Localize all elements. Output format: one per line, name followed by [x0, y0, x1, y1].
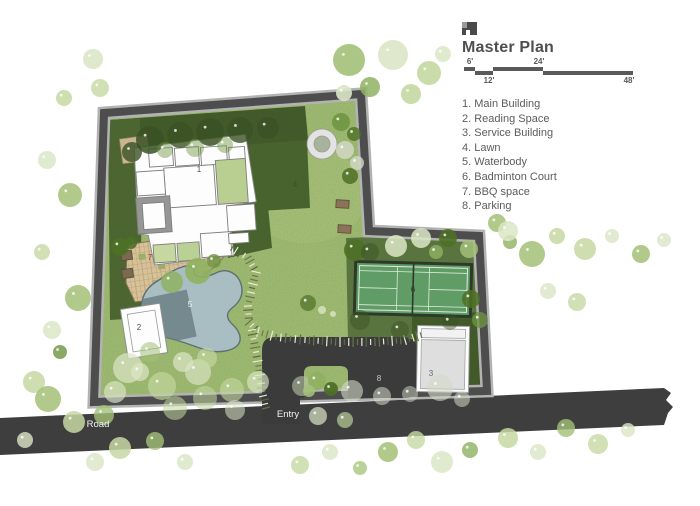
tree-highlight: [156, 380, 159, 383]
tree: [53, 345, 67, 359]
tree: [588, 434, 608, 454]
tree-highlight: [297, 381, 300, 384]
tree-highlight: [327, 385, 330, 388]
tree-highlight: [446, 318, 449, 321]
tree-highlight: [365, 82, 368, 85]
area-label-badminton-court: 6: [411, 285, 416, 294]
tree: [431, 451, 453, 473]
tree: [125, 237, 137, 249]
scale-label: 48': [624, 76, 635, 85]
tree: [385, 235, 407, 257]
tree: [247, 371, 269, 393]
tree-highlight: [580, 244, 583, 247]
tree: [225, 400, 245, 420]
tree: [605, 229, 619, 243]
scale-segment: [475, 71, 493, 75]
tree-highlight: [88, 54, 91, 57]
tree: [35, 386, 61, 412]
tree: [217, 137, 233, 153]
tree: [303, 385, 315, 397]
tree-highlight: [174, 129, 177, 132]
tree-highlight: [169, 402, 172, 405]
tree-highlight: [21, 436, 24, 439]
tree-highlight: [313, 411, 316, 414]
grass-hatch-tick: [379, 337, 380, 347]
tree-highlight: [64, 189, 67, 192]
tree-highlight: [226, 384, 229, 387]
tree-highlight: [355, 315, 358, 318]
logo-detail: [466, 30, 470, 35]
tree: [391, 321, 409, 339]
master-plan-page: 1 2 3 4 5 6 7 8 Road Entry Master Plan 6…: [0, 0, 700, 506]
tree-highlight: [353, 159, 356, 162]
area-label-parking: 8: [377, 374, 382, 383]
scale-label: 6': [467, 57, 473, 66]
tree-highlight: [263, 123, 266, 126]
tree-highlight: [199, 392, 202, 395]
tree-highlight: [90, 457, 93, 460]
tree-highlight: [503, 433, 506, 436]
tree-highlight: [526, 248, 529, 251]
tree: [318, 306, 326, 314]
grass-hatch-tick: [243, 310, 253, 311]
tree: [207, 254, 221, 268]
legend-item: 5. Waterbody: [462, 155, 694, 170]
tree: [347, 127, 361, 141]
road-label: Road: [87, 419, 110, 430]
tree: [454, 391, 470, 407]
area-label-lawn: 4: [293, 180, 298, 189]
tree: [38, 151, 56, 169]
tree: [91, 79, 109, 97]
tree-highlight: [340, 145, 343, 148]
tree: [17, 432, 33, 448]
tree: [337, 412, 353, 428]
tree: [146, 432, 164, 450]
legend-item: 2. Reading Space: [462, 112, 694, 127]
tree-highlight: [42, 393, 45, 396]
tree-highlight: [660, 236, 663, 239]
tree: [122, 142, 142, 162]
tree: [498, 221, 518, 241]
tree-highlight: [178, 357, 181, 360]
area-label-reading-space: 2: [137, 323, 142, 332]
tree-highlight: [253, 377, 256, 380]
logo-detail: [462, 22, 467, 28]
tree-highlight: [29, 377, 32, 380]
tree: [63, 411, 85, 433]
tree-highlight: [161, 146, 164, 149]
tree-highlight: [416, 233, 419, 236]
page-title: Master Plan: [462, 39, 694, 57]
tree-highlight: [181, 458, 184, 461]
tree: [186, 139, 204, 157]
tree: [621, 423, 635, 437]
tree-highlight: [377, 391, 380, 394]
entry-label: Entry: [277, 409, 299, 420]
tree: [530, 444, 546, 460]
tree: [109, 437, 131, 459]
tree-highlight: [593, 439, 596, 442]
tree-highlight: [466, 446, 469, 449]
tree-highlight: [624, 426, 627, 429]
tree: [462, 290, 480, 308]
tree-highlight: [202, 353, 205, 356]
tree-highlight: [38, 248, 41, 251]
tree: [402, 386, 418, 402]
tree-highlight: [341, 416, 344, 419]
tree-highlight: [492, 218, 495, 221]
tree: [472, 312, 488, 328]
tree-highlight: [572, 297, 575, 300]
tree: [34, 244, 50, 260]
tree: [148, 372, 176, 400]
tree: [439, 229, 457, 247]
tree-highlight: [411, 435, 414, 438]
scale-segment: [464, 67, 475, 71]
info-panel: Master Plan 6' 12' 24' 48' 1. Main Build…: [462, 22, 694, 214]
tree: [336, 85, 352, 101]
legend-item: 8. Parking: [462, 199, 694, 214]
tree-highlight: [383, 447, 386, 450]
tree-highlight: [356, 464, 359, 467]
tree-highlight: [204, 126, 207, 129]
tree: [227, 117, 253, 143]
tree: [56, 90, 72, 106]
tree: [336, 141, 354, 159]
tree-highlight: [234, 124, 237, 127]
tree-highlight: [476, 316, 479, 319]
tree: [568, 293, 586, 311]
tree: [324, 382, 338, 396]
grass-hatch-tick: [295, 335, 296, 343]
tree: [442, 314, 458, 330]
tree-highlight: [115, 242, 118, 245]
scale-bar: 6' 12' 24' 48': [462, 60, 642, 86]
tree-highlight: [326, 448, 329, 451]
tree-highlight: [150, 436, 153, 439]
tree: [407, 431, 425, 449]
tree-highlight: [464, 244, 467, 247]
tree: [427, 375, 453, 401]
tree-highlight: [190, 143, 193, 146]
tree-highlight: [340, 89, 343, 92]
tree-highlight: [443, 233, 446, 236]
tree: [378, 442, 398, 462]
tree-highlight: [365, 247, 368, 250]
tree-highlight: [295, 460, 298, 463]
architect-logo-icon: [462, 22, 477, 35]
legend-item: 7. BBQ space: [462, 185, 694, 200]
tree: [330, 311, 336, 317]
tree-highlight: [312, 376, 315, 379]
tree-highlight: [608, 232, 611, 235]
tree-highlight: [210, 257, 213, 260]
tree: [83, 49, 103, 69]
planter-ring: [307, 129, 337, 159]
tree-highlight: [110, 387, 113, 390]
tree-highlight: [72, 292, 75, 295]
tree-highlight: [60, 94, 63, 97]
tree-highlight: [121, 361, 124, 364]
tree: [401, 84, 421, 104]
legend-item: 6. Badminton Court: [462, 170, 694, 185]
tree: [131, 363, 149, 381]
grass-hatch-tick: [327, 336, 328, 346]
grass-hatch-tick: [313, 336, 314, 346]
tree-highlight: [439, 50, 442, 53]
tree: [332, 113, 350, 131]
tree: [557, 419, 575, 437]
tree-highlight: [56, 348, 59, 351]
tree: [193, 386, 217, 410]
tree-highlight: [432, 248, 435, 251]
tree-highlight: [437, 457, 440, 460]
tree-highlight: [230, 405, 233, 408]
tree-highlight: [423, 67, 426, 70]
tree-highlight: [47, 325, 50, 328]
scale-label: 24': [534, 57, 545, 66]
tree-highlight: [636, 249, 639, 252]
tree-highlight: [145, 347, 148, 350]
tree: [353, 461, 367, 475]
scale-segment: [493, 67, 543, 71]
tree: [300, 295, 316, 311]
tree-highlight: [458, 395, 461, 398]
tree-highlight: [350, 245, 353, 248]
tree-highlight: [304, 299, 307, 302]
tree: [309, 407, 327, 425]
tree: [197, 348, 217, 368]
tree: [65, 285, 91, 311]
tree-highlight: [391, 241, 394, 244]
tree-highlight: [99, 410, 102, 413]
tree-highlight: [350, 130, 353, 133]
tree: [350, 156, 364, 170]
tree: [657, 233, 671, 247]
tree: [360, 77, 380, 97]
tree-highlight: [135, 367, 138, 370]
tree: [86, 453, 104, 471]
tree: [140, 342, 160, 362]
scale-label: 12': [484, 76, 495, 85]
legend-item: 1. Main Building: [462, 97, 694, 112]
tree: [342, 168, 358, 184]
scale-segment: [543, 71, 633, 75]
tree-highlight: [346, 172, 349, 175]
tree-highlight: [386, 48, 389, 51]
tree-highlight: [466, 294, 469, 297]
tree: [177, 454, 193, 470]
tree: [161, 271, 183, 293]
grass-hatch-tick: [392, 336, 393, 346]
tree: [322, 444, 338, 460]
tree: [417, 61, 441, 85]
tree: [411, 228, 431, 248]
tree-highlight: [221, 141, 224, 144]
tree-highlight: [347, 386, 350, 389]
grass-hatch-tick: [388, 337, 389, 345]
tree: [460, 240, 478, 258]
area-label-bbq-space: 7: [148, 253, 153, 262]
tree-highlight: [406, 390, 409, 393]
tree: [632, 245, 650, 263]
tree: [549, 228, 565, 244]
legend-item: 3. Service Building: [462, 126, 694, 141]
tree: [104, 381, 126, 403]
tree: [429, 245, 443, 259]
tree-highlight: [503, 226, 506, 229]
tree: [157, 142, 173, 158]
tree: [173, 352, 193, 372]
tree-highlight: [144, 134, 147, 137]
legend-list: 1. Main Building 2. Reading Space 3. Ser…: [462, 97, 694, 214]
tree: [43, 321, 61, 339]
area-label-service-building: 3: [429, 369, 434, 378]
tree-highlight: [167, 277, 170, 280]
tree: [350, 310, 370, 330]
tree-highlight: [553, 232, 556, 235]
tree: [378, 40, 408, 70]
tree-highlight: [544, 287, 547, 290]
area-label-main-building: 1: [197, 165, 202, 174]
grass-hatch-tick: [280, 334, 281, 342]
tree: [163, 396, 187, 420]
tree-highlight: [434, 382, 437, 385]
tree-highlight: [95, 83, 98, 86]
tree: [341, 380, 363, 402]
tree-highlight: [115, 443, 118, 446]
tree: [498, 428, 518, 448]
tree-highlight: [534, 448, 537, 451]
tree-highlight: [192, 265, 195, 268]
green-roof: [215, 158, 248, 204]
tree-highlight: [336, 117, 339, 120]
tree: [361, 243, 379, 261]
tree-highlight: [127, 147, 130, 150]
tree: [462, 442, 478, 458]
tree: [291, 456, 309, 474]
tree-highlight: [42, 155, 45, 158]
tree: [574, 238, 596, 260]
grass-hatch-tick: [276, 334, 277, 340]
tree-highlight: [395, 325, 398, 328]
tree: [58, 183, 82, 207]
tree-highlight: [406, 89, 409, 92]
tree-highlight: [69, 417, 72, 420]
tree: [333, 44, 365, 76]
tree: [373, 387, 391, 405]
tree: [257, 117, 279, 139]
tree-highlight: [342, 53, 345, 56]
tree-highlight: [561, 423, 564, 426]
tree: [220, 378, 244, 402]
tree: [519, 241, 545, 267]
grass-hatch-tick: [375, 338, 376, 346]
grass-hatch-tick: [290, 336, 291, 342]
tree: [435, 46, 451, 62]
legend-item: 4. Lawn: [462, 141, 694, 156]
tree-highlight: [192, 366, 195, 369]
tree: [540, 283, 556, 299]
green-roof: [153, 244, 176, 263]
area-label-waterbody: 5: [188, 300, 193, 309]
